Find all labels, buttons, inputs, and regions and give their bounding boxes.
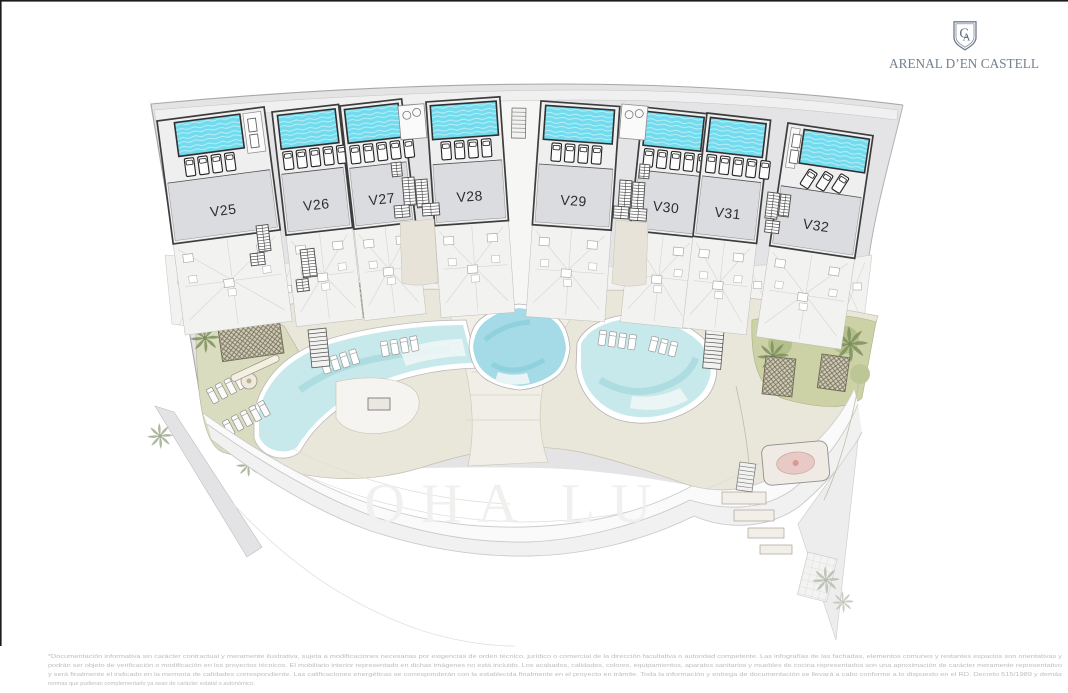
svg-text:OHA LU: OHA LU: [365, 473, 668, 535]
svg-text:V29: V29: [560, 192, 587, 210]
svg-text:V30: V30: [652, 198, 680, 217]
svg-text:V28: V28: [456, 187, 483, 205]
svg-text:podrán ser objeto de verificac: podrán ser objeto de verificación o modi…: [48, 663, 1062, 669]
svg-text:V26: V26: [302, 195, 330, 214]
svg-text:V31: V31: [714, 204, 742, 223]
svg-text:V25: V25: [209, 200, 237, 219]
svg-text:*Documentación informativa sin: *Documentación informativa sin carácter …: [48, 654, 1062, 660]
svg-text:ARENAL D’EN CASTELL: ARENAL D’EN CASTELL: [889, 56, 1039, 71]
svg-text:normas que pudieran complement: normas que pudieran complementarlo ya se…: [48, 681, 255, 687]
svg-text:A: A: [963, 32, 971, 44]
svg-text:V27: V27: [368, 189, 396, 208]
svg-text:y será finalmente el indicado: y será finalmente el indicado en la memo…: [48, 672, 1062, 678]
